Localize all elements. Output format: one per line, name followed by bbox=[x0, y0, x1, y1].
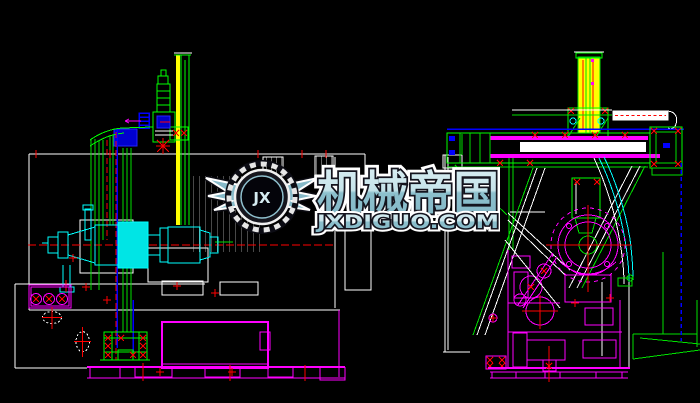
cad-canvas: JX 机械帝国 机械帝国 机械帝国 JXDIGUO.COM JXDIGUO.CO… bbox=[0, 0, 700, 403]
logo-monogram: JX bbox=[252, 189, 271, 207]
rack-rail bbox=[613, 111, 677, 129]
spindle-body bbox=[118, 222, 148, 268]
watermark: JX 机械帝国 机械帝国 机械帝国 JXDIGUO.COM JXDIGUO.CO… bbox=[200, 156, 500, 244]
side-base bbox=[486, 250, 630, 382]
mounting-bracket bbox=[100, 332, 150, 360]
tool-center-mark bbox=[156, 138, 170, 154]
chip-chute bbox=[633, 163, 700, 359]
coolant-tank bbox=[162, 322, 270, 368]
svg-text:JXDIGUO.COM: JXDIGUO.COM bbox=[315, 211, 499, 233]
gear-icon: JX bbox=[228, 163, 296, 231]
brand-domain-text: JXDIGUO.COM JXDIGUO.COM JXDIGUO.COM bbox=[315, 211, 499, 233]
coolant-pump bbox=[29, 285, 71, 308]
machine-base bbox=[87, 310, 345, 381]
spindle-head bbox=[546, 178, 632, 302]
inspection-ellipses bbox=[42, 307, 91, 357]
beam-end-plate bbox=[650, 127, 682, 175]
logo-emblem: JX bbox=[206, 163, 318, 231]
